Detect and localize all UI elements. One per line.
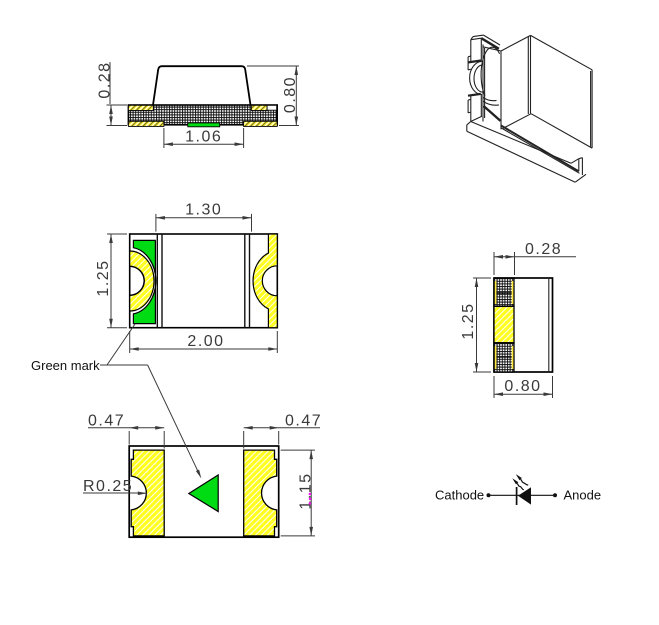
svg-text:1.30: 1.30 (185, 202, 222, 219)
svg-text:0.47: 0.47 (88, 413, 125, 430)
svg-text:1.15: 1.15 (298, 472, 315, 509)
svg-text:Green mark: Green mark (31, 358, 100, 373)
svg-text:2.00: 2.00 (187, 333, 224, 350)
svg-text:0.47: 0.47 (285, 413, 322, 430)
svg-text:Cathode: Cathode (435, 488, 484, 503)
svg-text:0.28: 0.28 (97, 61, 114, 98)
svg-text:0.28: 0.28 (525, 241, 562, 258)
svg-text:1.06: 1.06 (185, 129, 222, 146)
svg-text:0.80: 0.80 (504, 378, 541, 395)
svg-text:Anode: Anode (564, 488, 602, 503)
svg-text:R0.25: R0.25 (83, 478, 133, 495)
svg-text:1.25: 1.25 (95, 259, 112, 296)
svg-text:1.25: 1.25 (460, 302, 477, 339)
svg-text:0.80: 0.80 (282, 76, 299, 113)
